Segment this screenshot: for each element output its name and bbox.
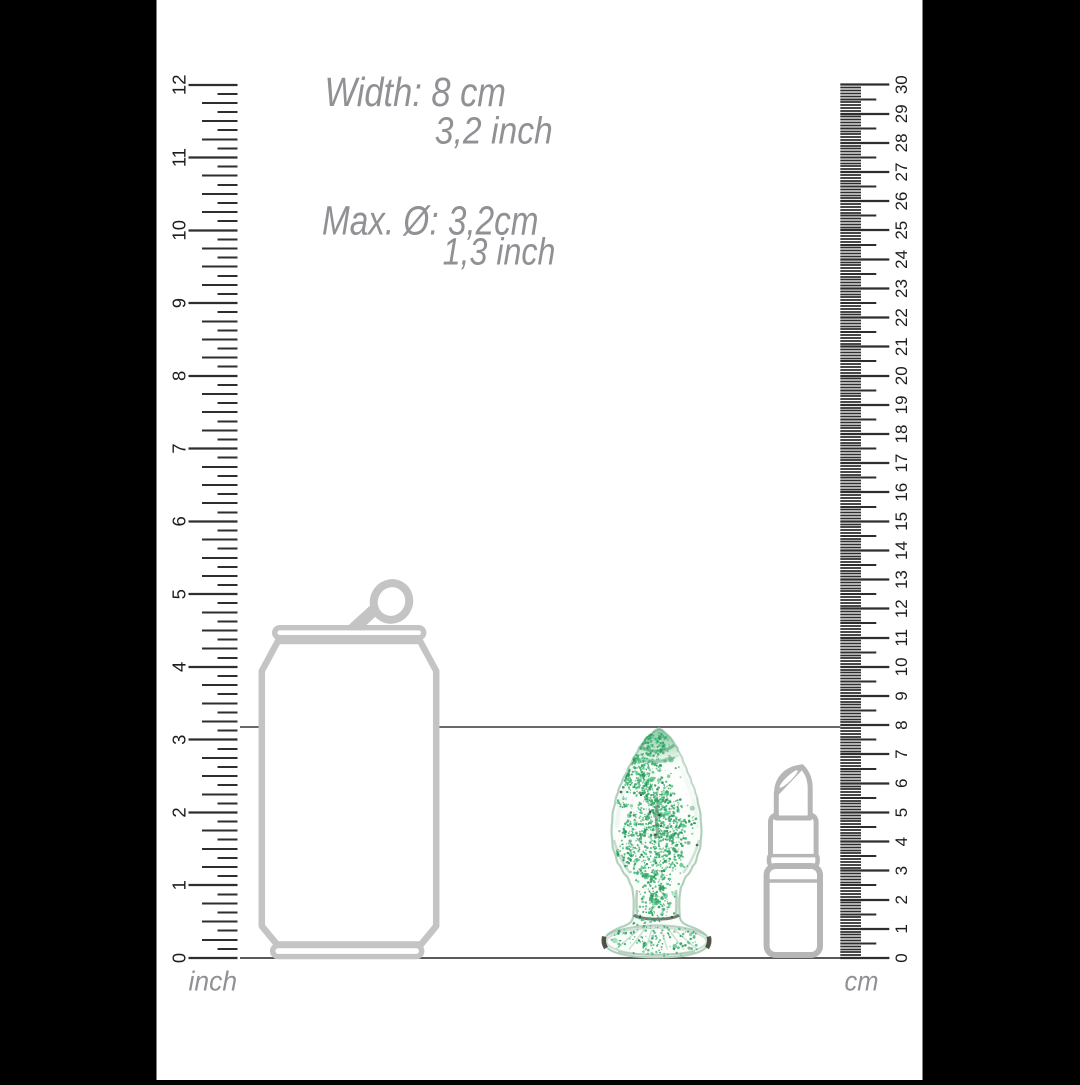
svg-text:4: 4 bbox=[169, 662, 190, 672]
svg-text:12: 12 bbox=[892, 599, 911, 618]
svg-text:9: 9 bbox=[169, 298, 190, 308]
svg-text:2: 2 bbox=[169, 807, 190, 817]
svg-text:25: 25 bbox=[892, 221, 911, 240]
svg-text:28: 28 bbox=[892, 133, 911, 152]
svg-text:8: 8 bbox=[169, 371, 190, 381]
svg-text:7: 7 bbox=[892, 749, 911, 758]
svg-text:14: 14 bbox=[892, 541, 911, 560]
svg-text:3,2 inch: 3,2 inch bbox=[435, 111, 553, 153]
svg-text:22: 22 bbox=[892, 308, 911, 327]
svg-text:7: 7 bbox=[169, 443, 190, 453]
svg-text:27: 27 bbox=[892, 163, 911, 182]
svg-text:6: 6 bbox=[892, 779, 911, 788]
svg-text:5: 5 bbox=[892, 808, 911, 817]
svg-text:10: 10 bbox=[169, 220, 190, 241]
svg-text:1: 1 bbox=[892, 924, 911, 933]
svg-text:0: 0 bbox=[892, 953, 911, 962]
svg-text:16: 16 bbox=[892, 483, 911, 502]
svg-text:26: 26 bbox=[892, 192, 911, 211]
svg-text:13: 13 bbox=[892, 570, 911, 589]
svg-text:3: 3 bbox=[169, 735, 190, 745]
svg-text:15: 15 bbox=[892, 512, 911, 531]
svg-text:21: 21 bbox=[892, 337, 911, 356]
svg-text:Width: 8 cm: Width: 8 cm bbox=[325, 69, 507, 115]
svg-text:0: 0 bbox=[169, 953, 190, 963]
svg-text:24: 24 bbox=[892, 250, 911, 269]
svg-text:11: 11 bbox=[169, 148, 190, 167]
svg-text:8: 8 bbox=[892, 720, 911, 729]
svg-text:11: 11 bbox=[892, 629, 911, 647]
svg-text:9: 9 bbox=[892, 691, 911, 700]
svg-text:1: 1 bbox=[169, 880, 190, 890]
svg-text:4: 4 bbox=[892, 837, 911, 846]
svg-text:1,3 inch: 1,3 inch bbox=[443, 232, 556, 274]
svg-text:29: 29 bbox=[892, 104, 911, 123]
svg-text:18: 18 bbox=[892, 425, 911, 444]
svg-text:30: 30 bbox=[892, 75, 911, 94]
svg-text:2: 2 bbox=[892, 895, 911, 904]
svg-text:cm: cm bbox=[845, 966, 879, 997]
svg-text:6: 6 bbox=[169, 516, 190, 526]
svg-text:20: 20 bbox=[892, 366, 911, 385]
svg-text:5: 5 bbox=[169, 589, 190, 599]
svg-text:19: 19 bbox=[892, 395, 911, 414]
svg-text:3: 3 bbox=[892, 866, 911, 875]
svg-text:10: 10 bbox=[892, 657, 911, 676]
svg-text:17: 17 bbox=[892, 454, 911, 473]
svg-text:inch: inch bbox=[189, 966, 238, 997]
svg-text:12: 12 bbox=[169, 75, 190, 96]
svg-text:23: 23 bbox=[892, 279, 911, 298]
